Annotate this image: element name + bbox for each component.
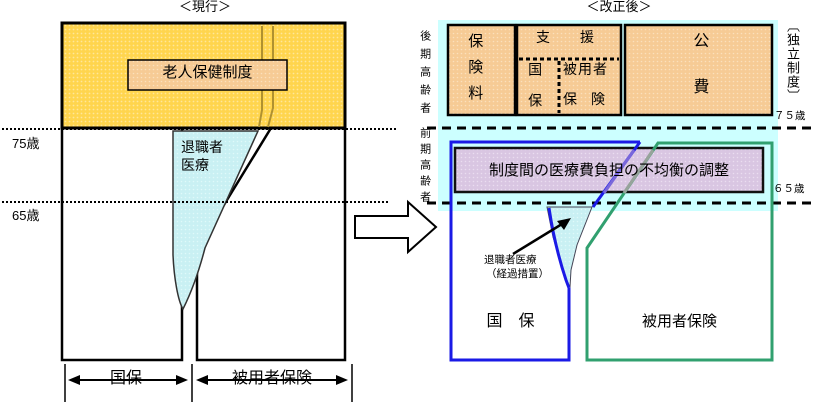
retiree-note-line2: （経過措置） [486,268,549,280]
age-75-label-right: ７５歳 [774,110,806,122]
retiree-label-line1: 退職者 [181,139,223,155]
employee-label-left: 被用者保険 [196,370,348,388]
adjustment-label: 制度間の医療費負担の不均衡の調整 [457,162,761,179]
kokuho-label-right: 国 保 [451,313,570,331]
retiree-note-line1: 退職者医療 [484,254,537,266]
left-title: ＜現行＞ [160,0,250,15]
age-75-label-left: 75歳 [12,137,39,152]
kokuho-box-left [62,128,182,360]
support-employee-label-line2: 保 険 [563,91,605,107]
elderly-system-label: 老人保健制度 [128,64,287,81]
public-expense-label: 公費 [689,32,707,124]
transform-arrow-icon [355,202,436,252]
support-label: 支 援 [517,29,621,45]
late-elderly-label: 後期高齢者 [418,30,431,120]
early-elderly-label: 前期高齢者 [418,127,431,207]
right-title: ＜改正後＞ [574,0,664,15]
age-65-label-left: 65歳 [12,209,39,224]
healthcare-reform-diagram: ＜現行＞ 老人保健制度 退職者 医療 75歳 65歳 国保 被用者保険 ＜改正後… [0,0,814,406]
age-65-label-right: ６５歳 [773,183,805,195]
support-employee-label-line1: 被用者 [563,61,608,77]
premium-label: 保険料 [466,33,483,111]
support-kokuho-label: 国保 [527,62,543,124]
kokuho-label-left: 国保 [66,370,186,388]
retiree-label-line2: 医療 [181,157,209,173]
independent-system-label: 〔独立制度〕 [784,19,799,103]
right-revised-diagram [427,20,812,360]
employee-label-right: 被用者保険 [587,313,772,330]
